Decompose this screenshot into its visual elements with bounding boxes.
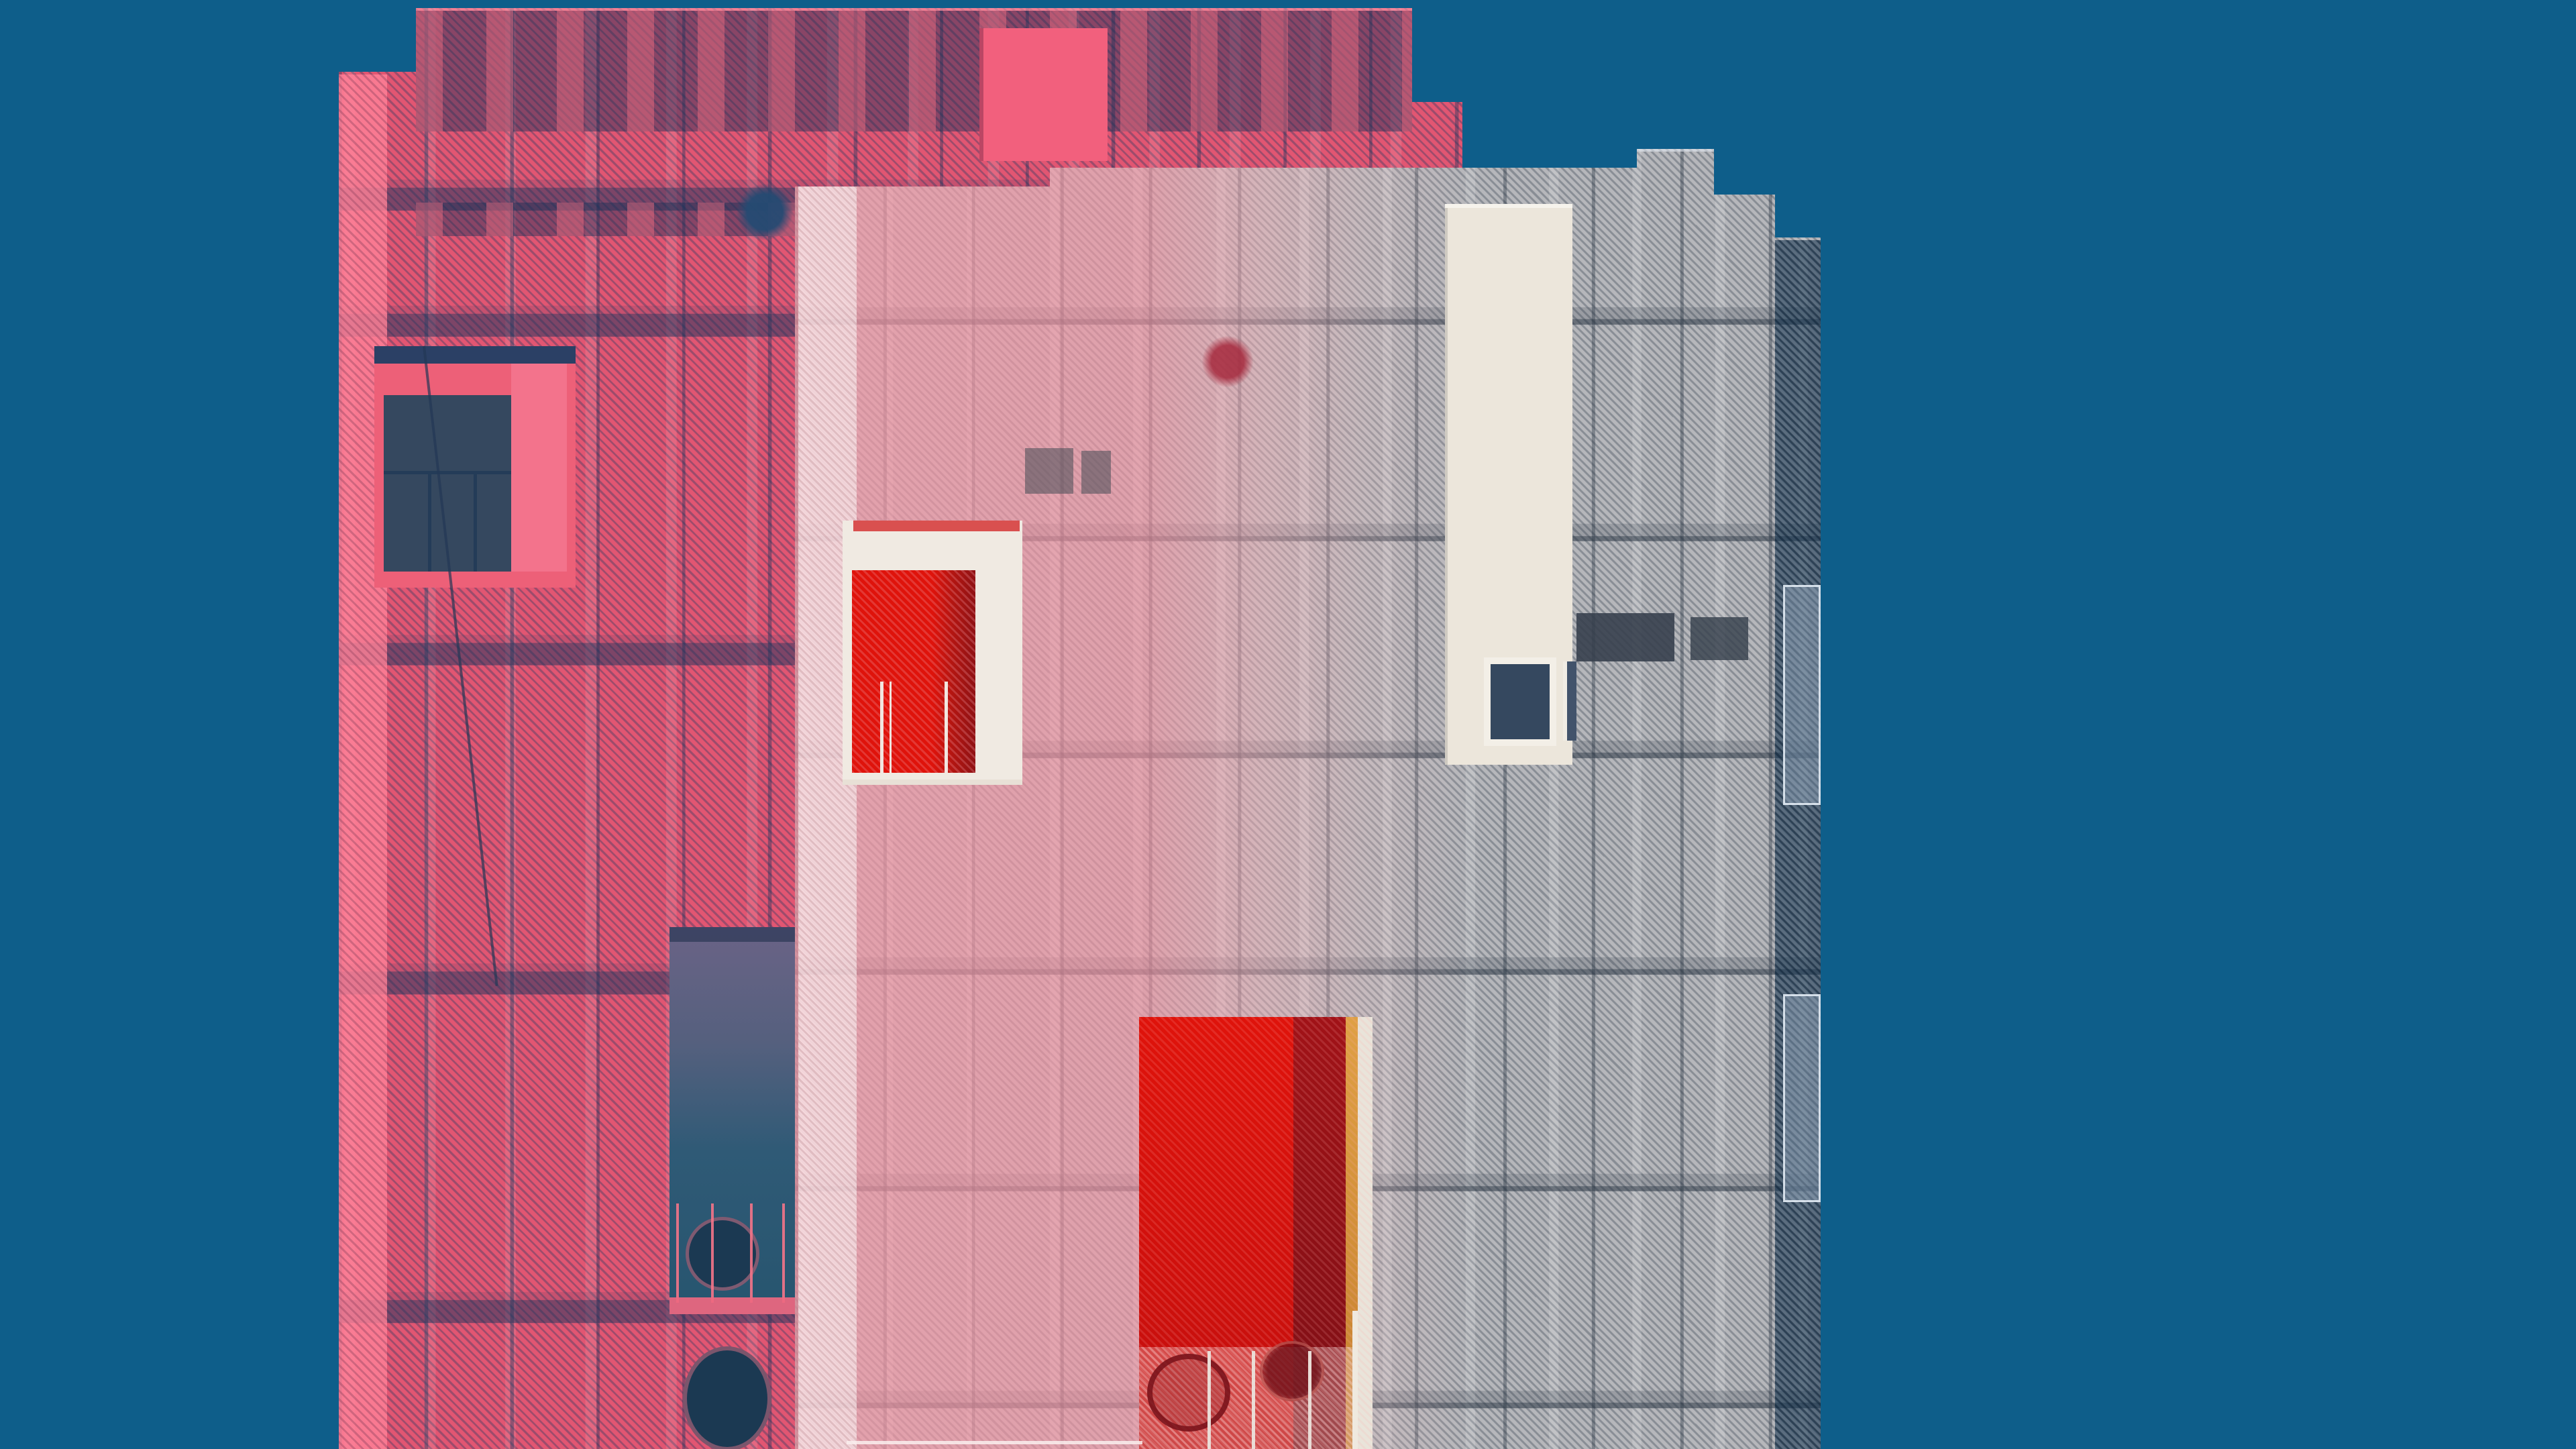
pink-opening-rail-post bbox=[711, 1203, 714, 1303]
pink-roofband-upper bbox=[416, 11, 1412, 131]
red-opening-rail-post bbox=[1207, 1351, 1211, 1449]
vent-block-1 bbox=[1025, 448, 1073, 494]
bottom-sill-line bbox=[847, 1441, 1142, 1444]
pink-opening-rail-post bbox=[676, 1203, 679, 1303]
gray-edge-highlight-column bbox=[798, 178, 857, 1449]
upper-red-window-top-strip bbox=[853, 521, 1020, 531]
porthole-circle bbox=[683, 1346, 771, 1449]
upper-red-window bbox=[843, 521, 1022, 785]
red-opening-rail-wide bbox=[1352, 1311, 1358, 1449]
pink-opening-sill bbox=[669, 1297, 796, 1314]
recessed-dark-band-2 bbox=[1690, 617, 1748, 660]
panel-window-partial bbox=[1563, 661, 1576, 741]
panel-cap-line bbox=[1445, 204, 1572, 208]
pink-opening-lintel bbox=[669, 927, 796, 942]
scene-building-photo bbox=[0, 0, 2576, 1449]
pink-edge-highlight bbox=[339, 74, 387, 1449]
upper-red-window-rail-post bbox=[890, 682, 892, 773]
red-opening-round-vent-2 bbox=[1260, 1341, 1324, 1401]
mesh-fin-1 bbox=[1783, 585, 1821, 805]
upper-red-window-sill bbox=[843, 780, 1022, 785]
pink-solid-panel bbox=[979, 28, 1108, 161]
pink-opening-rail-post bbox=[750, 1203, 753, 1303]
white-cladding-panel bbox=[1445, 204, 1572, 765]
pink-window bbox=[374, 346, 576, 588]
pink-opening-porthole bbox=[686, 1217, 759, 1291]
red-opening bbox=[1139, 1017, 1373, 1449]
vent-block-2 bbox=[1081, 451, 1111, 494]
red-opening-rail-post bbox=[1252, 1351, 1255, 1449]
pink-opening bbox=[669, 927, 796, 1314]
mesh-fin-2 bbox=[1783, 994, 1821, 1202]
pink-opening-rail-post bbox=[782, 1203, 785, 1303]
upper-red-window-reveal bbox=[852, 570, 975, 773]
right-shade-strip bbox=[1775, 240, 1821, 1449]
mesh-knot-red-icon bbox=[1202, 336, 1253, 387]
red-opening-rail-post bbox=[1308, 1351, 1311, 1449]
pink-window-rail-post bbox=[428, 471, 431, 572]
upper-red-window-rail-post bbox=[945, 682, 948, 773]
mesh-knot-navy-icon bbox=[737, 184, 793, 240]
red-opening-round-vent-1 bbox=[1147, 1354, 1230, 1432]
panel-window bbox=[1484, 657, 1556, 746]
pink-window-rail-post bbox=[474, 471, 477, 572]
pink-window-lit-reveal bbox=[511, 364, 567, 572]
building-gray bbox=[795, 149, 1821, 1449]
pink-window-rail-top bbox=[384, 471, 511, 474]
pink-window-lintel bbox=[374, 346, 576, 364]
recessed-dark-band-1 bbox=[1576, 613, 1674, 661]
upper-red-window-rail-post bbox=[880, 682, 883, 773]
